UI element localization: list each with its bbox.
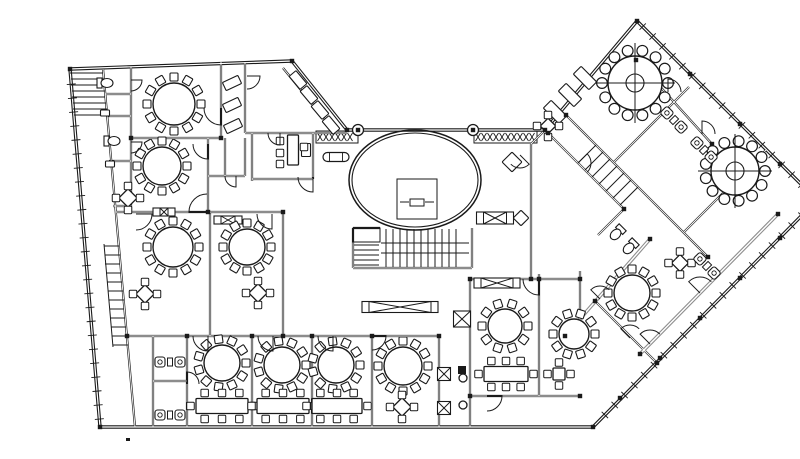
chair [218,389,226,397]
chair [719,194,730,205]
chair [341,338,352,349]
oval-hall-wall-inner [352,133,478,227]
node-marker [537,277,541,281]
lounge-pair [155,410,185,420]
node-marker [578,394,582,398]
chair [488,383,496,391]
wall-core [640,214,778,354]
chair [747,141,758,152]
chair [302,361,310,369]
chair [659,63,670,74]
chair [374,362,382,370]
wall-tick [71,140,80,141]
door-arc [225,176,236,187]
chair [600,63,611,74]
desk [288,135,299,165]
chair [544,370,552,378]
node-marker [345,128,349,132]
chair [262,415,270,423]
door-arc [523,279,539,295]
chair [169,139,180,150]
chair [195,243,203,251]
counter [502,152,522,172]
node-marker [778,162,782,166]
chair [615,308,626,319]
chair [665,259,673,267]
square-table [119,189,137,207]
node-marker [219,136,223,140]
wall-tick [76,195,85,196]
chair [639,308,650,319]
door-arc [204,108,221,125]
stair-line [613,180,631,198]
node-marker [564,113,568,117]
wall-tick [87,321,96,322]
stair-line [599,166,617,184]
door-arc [189,194,207,212]
node-marker [471,128,475,132]
node-marker [658,356,662,360]
chair [143,100,151,108]
node-marker [698,316,702,320]
wall-tick [95,419,104,420]
rect-table [196,399,248,414]
door-arc [487,396,502,411]
chair [266,289,274,297]
chair [145,255,156,266]
round-table [229,229,265,265]
chair [243,219,251,227]
counter [222,97,241,112]
chair [398,391,406,399]
door-arc [136,214,152,230]
chair [178,148,189,159]
counter [106,161,115,167]
node-marker [250,334,254,338]
chair [155,122,166,133]
square-table [249,284,267,302]
chair [242,359,250,367]
node-marker [68,67,72,71]
chair [376,348,387,359]
chair [145,85,156,96]
chair [562,309,572,319]
chair [376,373,387,384]
chair [533,122,541,130]
chair [385,382,396,393]
chair [410,339,421,350]
wall-core [292,61,347,130]
chair [555,382,563,390]
chair [181,264,192,275]
chair [136,194,144,202]
chair [747,190,758,201]
chair [650,52,661,63]
round-table [153,227,193,267]
round-table [204,345,240,381]
door-arc [702,121,715,134]
counter [573,66,596,89]
wall-tick [82,265,91,266]
chair [242,289,250,297]
chair [236,415,244,423]
chair [555,122,563,130]
chair [300,143,308,151]
chair [493,299,503,309]
node-marker [370,334,374,338]
chair [297,415,305,423]
chair [676,248,684,256]
node-marker [738,122,742,126]
armchair [155,357,165,367]
chair [756,180,767,191]
planter-band [474,131,537,143]
chair [364,402,372,410]
wall-tick [74,168,83,169]
chair [609,52,620,63]
chair [555,359,563,367]
rect-table [312,399,362,414]
wc-toilet [97,78,113,88]
chair [600,92,611,103]
rect-table [484,367,528,382]
chair [276,160,284,168]
chair [169,269,177,277]
chair [562,349,572,359]
counter [223,118,242,133]
wall-tick [94,405,103,406]
chair [169,217,177,225]
chair [133,162,141,170]
chair [524,322,532,330]
wall-tick [90,363,99,364]
chair [214,335,223,344]
chair [297,389,305,397]
chair [194,351,204,361]
chair [356,361,364,369]
chair [197,100,205,108]
chair [419,348,430,359]
wall-tick [73,154,82,155]
node-marker [634,58,638,62]
chair [567,370,575,378]
chair [155,75,166,86]
chair [135,173,146,184]
chair [218,415,226,423]
chair [153,290,161,298]
chair [254,367,264,377]
chair [129,290,137,298]
node-marker [635,19,639,23]
chair [517,383,525,391]
chair [333,389,341,397]
wall-tick [68,98,77,99]
armchair [155,410,165,420]
chair [622,110,633,121]
chair [719,138,730,149]
chair [141,278,149,286]
node-marker [437,334,441,338]
node-marker [185,334,189,338]
armchair [175,410,185,420]
chair [530,370,538,378]
rect-table [257,399,309,414]
chair [591,330,599,338]
side-table [168,358,173,366]
wall-tick [70,126,79,127]
chair [182,75,193,86]
node-marker [129,136,133,140]
counter [558,83,581,106]
chair [488,357,496,365]
chair [410,382,421,393]
chair [221,254,232,265]
chair [639,267,650,278]
stair-line [592,159,610,177]
chair [141,302,149,310]
chair [262,254,273,265]
wall-tick [67,84,76,85]
chair [575,309,585,319]
chair [287,338,298,349]
node-marker [648,237,652,241]
node-marker [655,361,659,365]
node-marker [578,277,582,281]
counter [513,210,529,226]
chair [201,389,209,397]
chair [700,173,711,184]
stair-line [606,173,624,191]
chair [190,229,201,240]
wall-tick [80,237,89,238]
chair [183,162,191,170]
chair [178,173,189,184]
chair [475,370,483,378]
node-marker [125,334,129,338]
chair [287,382,298,393]
chair [155,219,166,230]
chair [124,206,132,214]
chair [230,262,241,273]
chair [659,92,670,103]
chair [707,185,718,196]
node-marker [281,334,285,338]
wall-tick [84,293,93,294]
chair [303,402,311,410]
chair [254,353,264,363]
chair [628,313,636,321]
chair [145,229,156,240]
chair [248,402,256,410]
counter [101,110,110,116]
chair [756,152,767,163]
square-table [672,255,689,272]
wc-toilet [104,136,120,146]
wc-toilet [608,224,626,242]
round-table [153,83,195,125]
side-table [168,411,173,419]
stair-line [620,187,638,205]
node-marker [563,334,567,338]
chair [606,300,617,311]
chair [254,301,262,309]
chair [647,276,658,287]
chair [652,289,660,297]
chair [155,264,166,275]
chair [399,337,407,345]
chair [262,230,273,241]
node-marker [206,210,210,214]
chair [254,277,262,285]
node-marker [529,277,533,281]
node-marker [310,334,314,338]
chair [145,112,156,123]
node-marker [738,276,742,280]
chair [192,85,203,96]
column [459,401,467,409]
chair [170,73,178,81]
node-marker [468,394,472,398]
chair [190,255,201,266]
chair [637,45,648,56]
wall-tick [78,223,87,224]
wall-tick [77,209,86,210]
node-marker [593,299,597,303]
chair [493,343,503,353]
chair [350,389,358,397]
chair [385,339,396,350]
door-arc [193,144,208,159]
chair [478,322,486,330]
chair [622,45,633,56]
wall-tick [91,377,100,378]
chair [124,182,132,190]
chair [386,403,394,411]
chair [507,299,517,309]
oval-table [323,153,349,162]
chair [276,149,284,157]
node-marker [618,396,622,400]
round-table [488,309,522,343]
door-arc [131,80,142,91]
chair [227,336,238,347]
counter [222,75,241,90]
chair [221,230,232,241]
square-table [136,285,154,303]
node-marker [622,207,626,211]
wall-tick [75,181,84,182]
chair [637,110,648,121]
chair [158,137,166,145]
wall-tick [88,335,97,336]
node-marker [356,128,360,132]
chair [609,103,620,114]
chair [192,112,203,123]
chair [236,389,244,397]
round-table [264,347,300,383]
chair [112,194,120,202]
armchair [175,357,185,367]
chair [507,343,517,353]
chair [262,389,270,397]
chair [219,243,227,251]
chair [424,362,432,370]
toilet-bowl [101,79,113,88]
chair [544,111,552,119]
round-table [614,275,650,311]
node-marker [290,59,294,63]
chair [398,415,406,423]
chair [410,403,418,411]
chair [419,373,430,384]
chair [182,122,193,133]
chair [604,289,612,297]
square-table [553,368,565,380]
chair [243,267,251,275]
chair [502,383,510,391]
floor-plan [40,16,800,443]
door-arc [247,76,260,89]
chair [135,148,146,159]
chair [279,415,287,423]
wall-core [70,69,100,427]
chair [169,182,180,193]
node-marker [468,277,472,281]
chair [227,380,238,391]
chair [333,415,341,423]
node-marker [638,352,642,356]
chair [201,415,209,423]
chair [308,367,318,377]
chair [575,349,585,359]
wall-tick [85,307,94,308]
chair [308,353,318,363]
column [459,374,467,382]
node-marker [688,72,692,76]
chair [194,365,204,375]
chair [650,103,661,114]
chair [549,330,557,338]
toilet-bowl [108,137,120,146]
wall-tick [83,279,92,280]
chair [187,402,195,410]
thin-outline [353,228,380,242]
solid-fixture [126,438,130,441]
round-table [143,147,181,185]
wall-tick [89,349,98,350]
chair [143,243,151,251]
chair [350,415,358,423]
chair [144,139,155,150]
stair-line [104,244,113,347]
oval-hall-wall [349,130,481,230]
lounge-pair [155,357,185,367]
round-table [318,347,354,383]
counter [289,71,307,90]
chair [170,127,178,135]
chair [158,187,166,195]
thin-outline [410,199,424,206]
wall-tick [93,391,102,392]
node-marker [776,212,780,216]
chair [502,357,510,365]
wall-core [566,115,708,257]
node-marker [546,131,550,135]
chair [647,300,658,311]
chair [181,219,192,230]
chair [267,243,275,251]
chair [317,389,325,397]
